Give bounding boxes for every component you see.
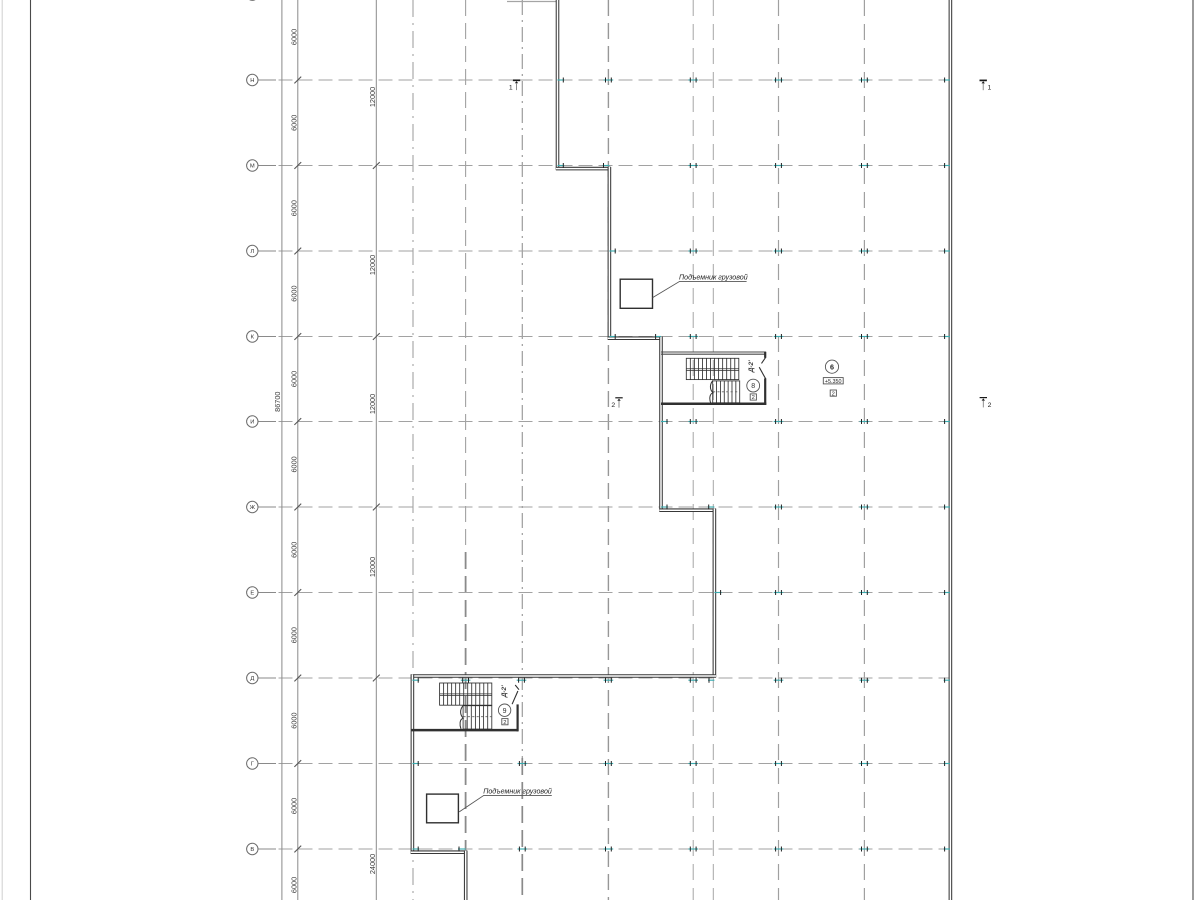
svg-text:12000: 12000 (368, 255, 377, 275)
svg-text:Л: Л (250, 249, 254, 255)
svg-text:6000: 6000 (289, 798, 298, 814)
svg-text:12000: 12000 (368, 394, 377, 414)
svg-text:6000: 6000 (289, 627, 298, 643)
svg-text:И: И (250, 420, 254, 426)
svg-text:Е: Е (250, 591, 254, 597)
svg-text:+5.350: +5.350 (825, 379, 842, 385)
svg-text:М: М (250, 164, 255, 170)
svg-text:2: 2 (988, 402, 992, 409)
svg-text:6000: 6000 (289, 115, 298, 131)
svg-text:12000: 12000 (368, 557, 377, 577)
svg-text:6: 6 (830, 363, 834, 372)
svg-text:6000: 6000 (289, 29, 298, 45)
svg-text:6000: 6000 (289, 456, 298, 472)
svg-text:Подъемник грузовой: Подъемник грузовой (483, 788, 552, 796)
svg-text:86700: 86700 (273, 392, 282, 412)
svg-text:6000: 6000 (289, 285, 298, 301)
svg-text:Ж: Ж (250, 505, 256, 511)
svg-text:6000: 6000 (289, 371, 298, 387)
svg-text:2: 2 (832, 391, 835, 397)
svg-text:1: 1 (509, 85, 513, 92)
svg-text:8: 8 (751, 383, 755, 390)
svg-text:6000: 6000 (289, 712, 298, 728)
svg-text:9: 9 (503, 708, 507, 715)
svg-text:Д-2': Д-2' (748, 360, 755, 373)
svg-text:Д: Д (250, 676, 254, 682)
svg-text:6000: 6000 (289, 542, 298, 558)
svg-text:Н: Н (250, 78, 254, 84)
svg-text:2: 2 (503, 720, 506, 726)
svg-text:Подъемник грузовой: Подъемник грузовой (679, 274, 748, 282)
svg-text:В: В (250, 847, 254, 853)
svg-text:1: 1 (988, 85, 992, 92)
svg-text:6000: 6000 (289, 200, 298, 216)
svg-text:Д-2': Д-2' (501, 685, 508, 698)
svg-text:2: 2 (611, 402, 615, 409)
svg-text:12000: 12000 (368, 87, 377, 107)
svg-text:2: 2 (752, 395, 755, 401)
svg-text:6000: 6000 (289, 877, 298, 893)
svg-text:24000: 24000 (368, 854, 377, 874)
